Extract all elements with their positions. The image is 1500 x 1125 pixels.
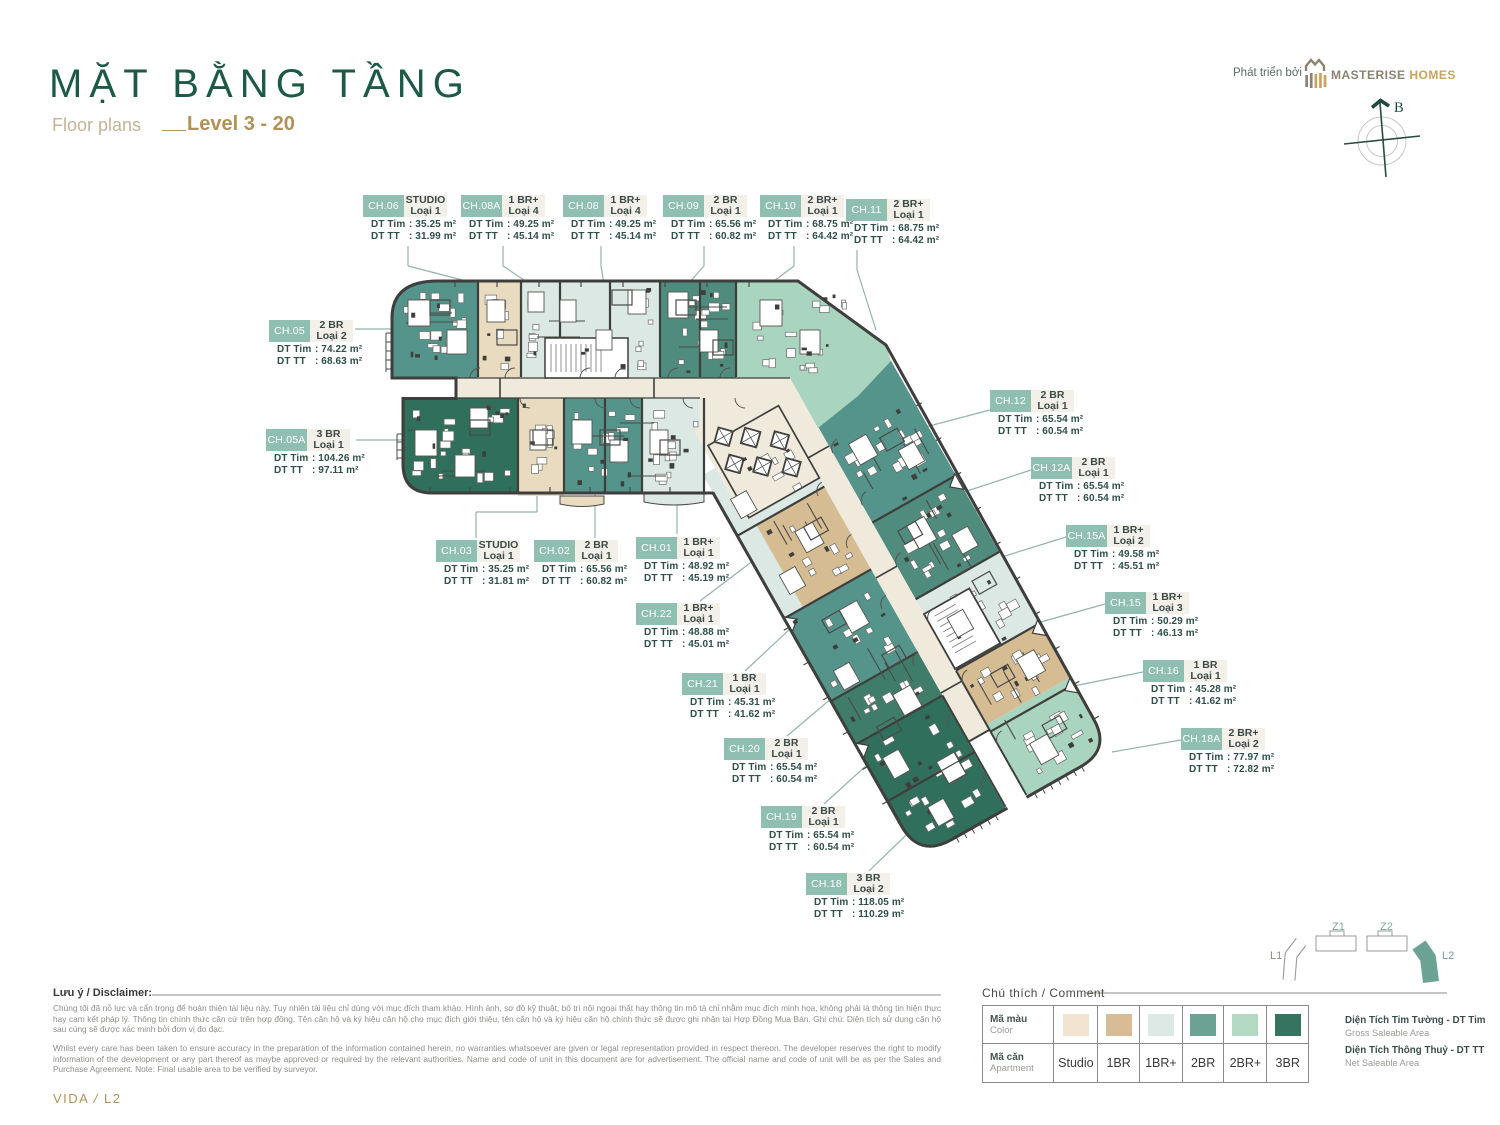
svg-text:L1: L1 — [1270, 950, 1282, 962]
svg-text:L2: L2 — [1442, 950, 1454, 962]
svg-text:Z1: Z1 — [1332, 921, 1345, 933]
svg-text:B: B — [1394, 100, 1404, 116]
svg-text:Z2: Z2 — [1380, 921, 1393, 933]
